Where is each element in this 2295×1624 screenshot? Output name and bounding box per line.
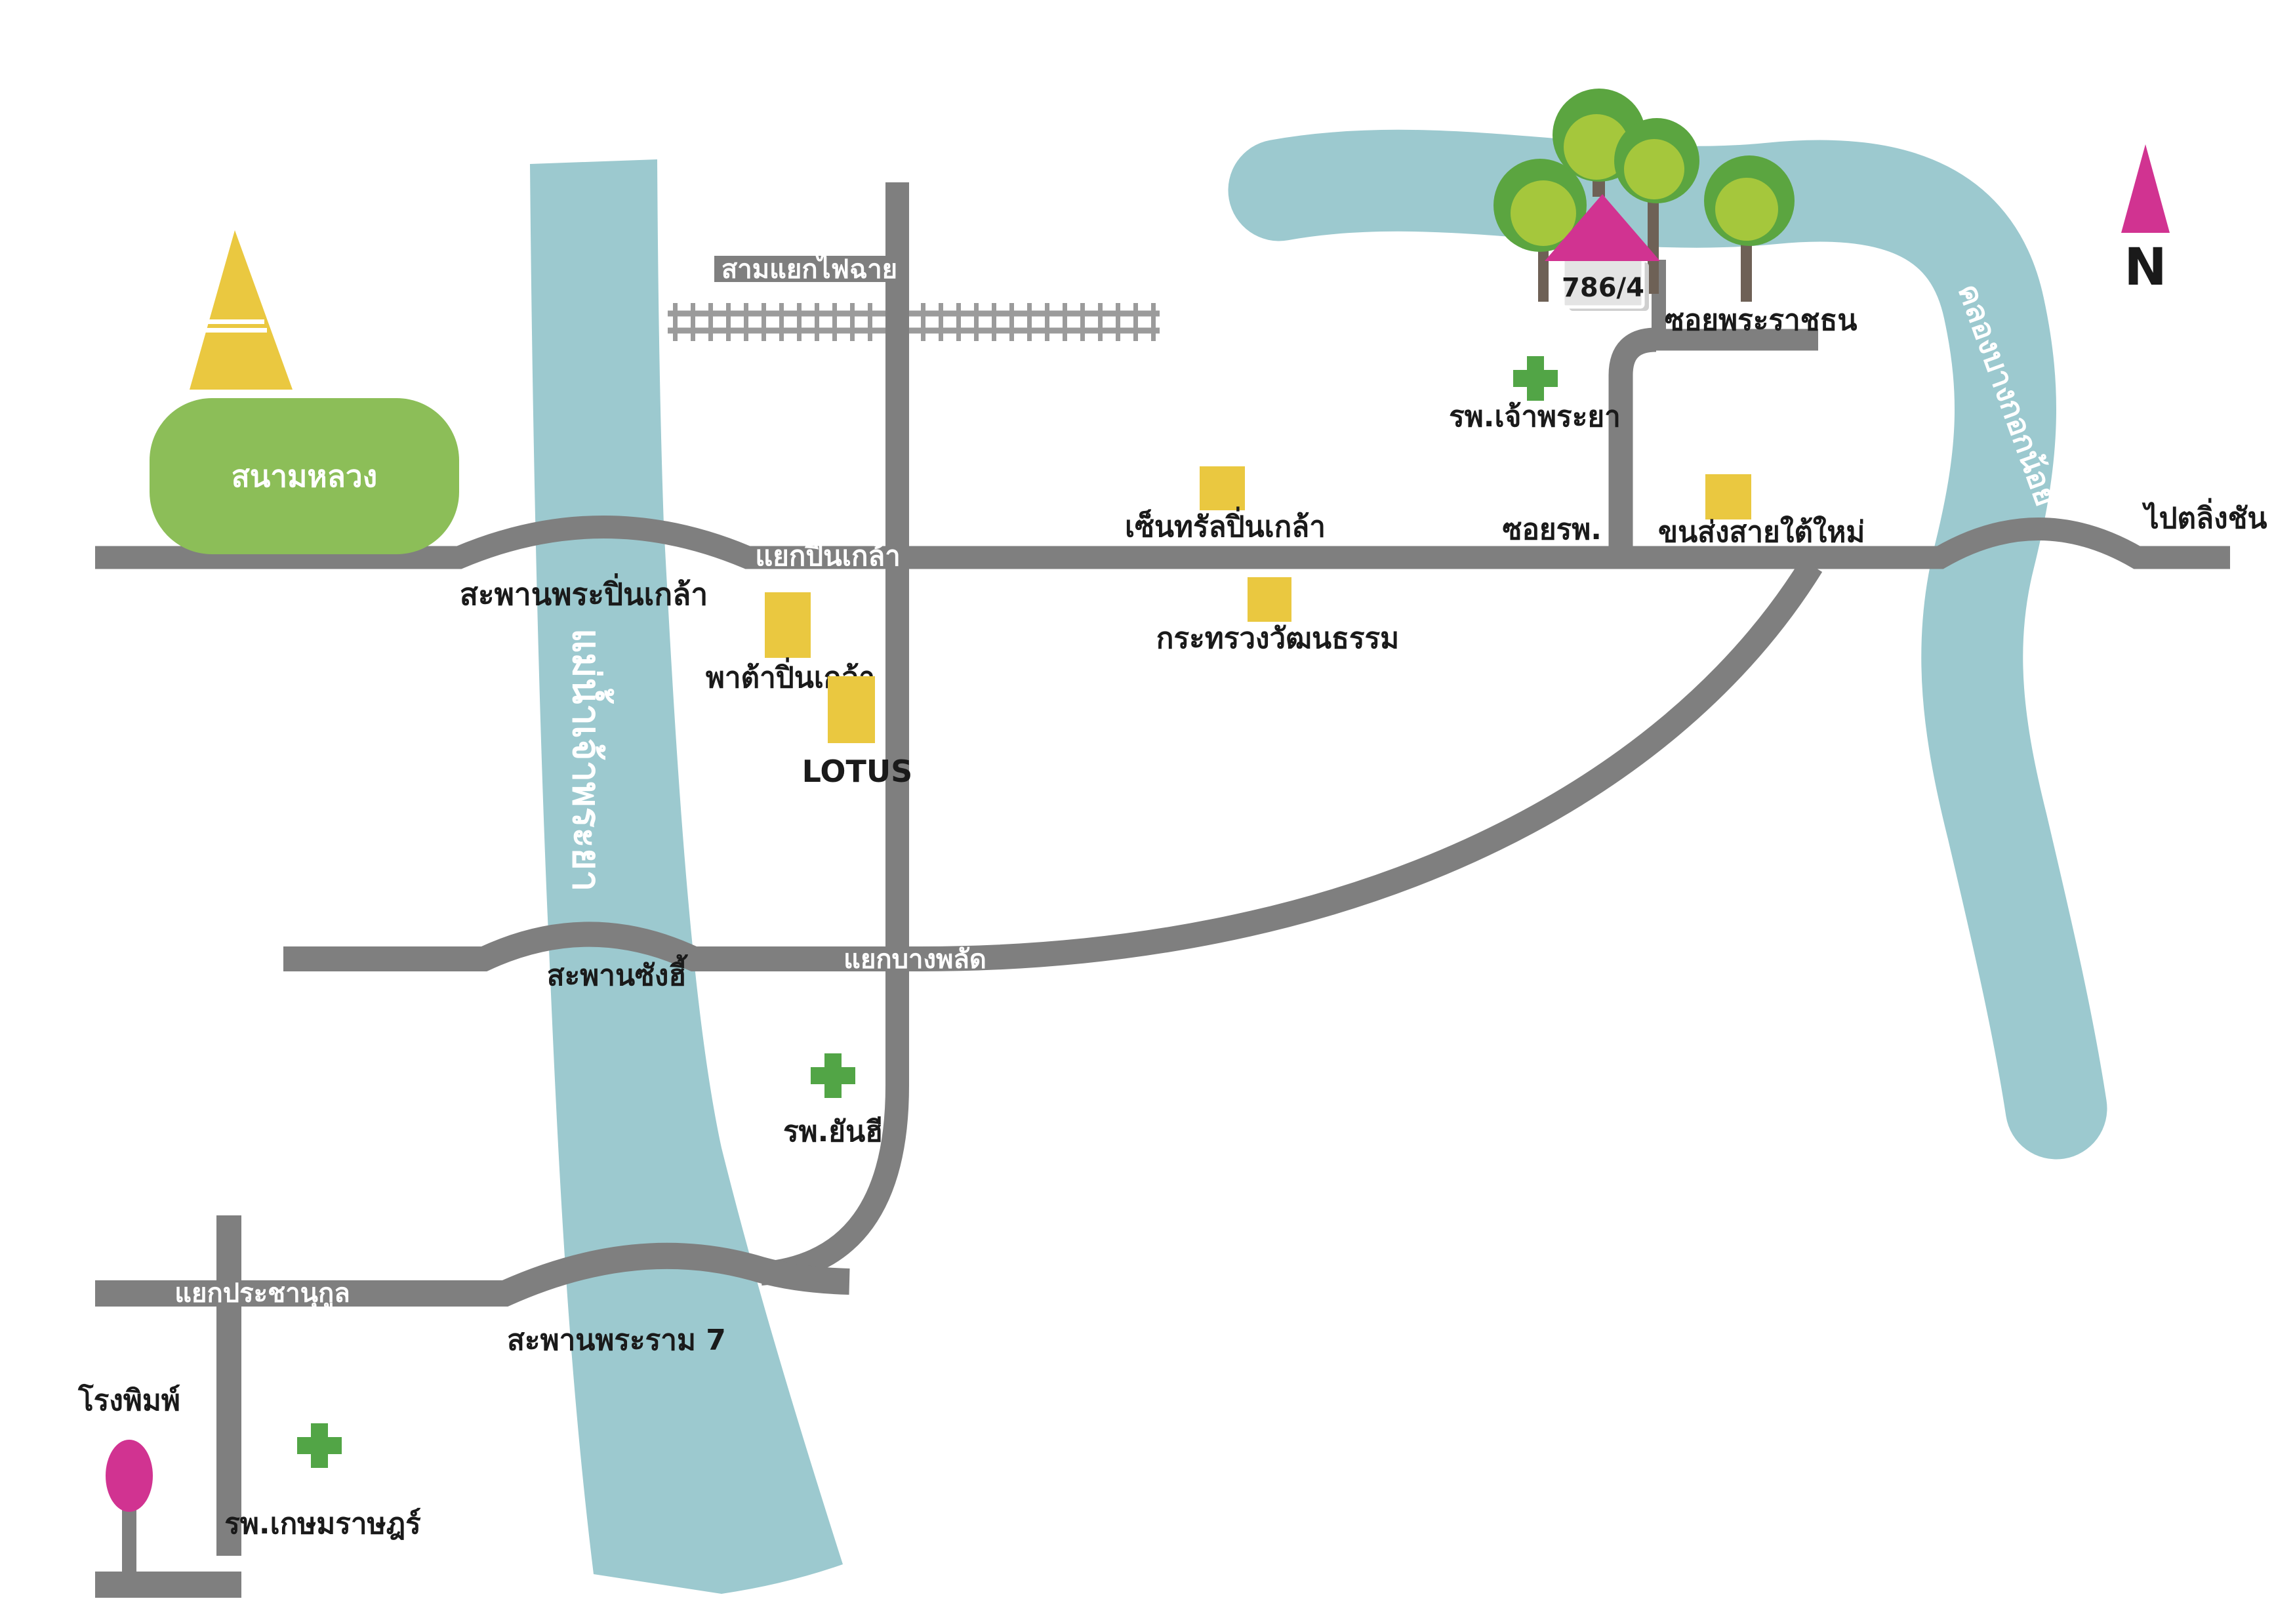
building-pata-pinklao [765,592,811,658]
bang-phlat-junction-label: แยกบางพลัด [843,944,986,975]
chao-phraya-hospital-label: รพ.เจ้าพระยา [1449,400,1621,434]
pinklao-junction-label: แยกปิ่นเกล้า [755,537,901,572]
printing-house-marker [106,1440,153,1512]
phra-pinklao-bridge-label: สะพานพระปิ่นเกล้า [460,573,708,612]
rama-7-bridge-label: สะพานพระราม 7 [507,1324,726,1357]
chao-phraya-hospital-cross-icon [1513,356,1558,401]
central-pinklao-label: เซ็นทรัลปิ่นเกล้า [1125,506,1326,544]
lotus-label: LOTUS [802,754,913,789]
pagoda-stripe-1 [207,319,264,324]
pracha-nukun-junction-label: แยกประชานุกูล [174,1278,350,1310]
yanhee-hospital-label: รพ.ยันฮี [783,1115,883,1148]
building-lotus [828,676,875,743]
kasemrad-hospital-cross-icon [297,1423,342,1468]
yanhee-hospital-cross-icon [811,1053,855,1098]
pagoda-stripe-2 [204,328,267,333]
compass-north-arrow-icon [2121,144,2170,233]
sanam-luang-group: สนามหลวง [150,230,459,554]
sanam-luang-label: สนามหลวง [232,458,377,494]
printing-house-group: โรงพิมพ์ [77,1383,180,1512]
road-bang-phlat-sweep [283,565,1812,959]
kasemrad-hospital-label: รพ.เกษมราษฎร์ [224,1507,421,1541]
tree-3-canopy-inner [1624,139,1684,199]
yellow-buildings: พาต้าปิ่นเกล้า LOTUS เซ็นทรัลปิ่นเกล้า ก… [706,466,1865,789]
fai-chai-junction-label: สามแยกไฟฉาย [721,254,897,285]
building-ministry-of-culture [1248,577,1291,622]
map-svg: แม่น้ำเจ้าพระยา คลองบางกอกน้อย ส [0,0,2295,1624]
road-hospital-soi [1621,340,1656,563]
southern-bus-terminal-label: ขนส่งสายใต้ใหม่ [1658,515,1865,549]
tree-4-canopy-inner [1715,178,1778,241]
house-number-label: 786/4 [1562,273,1644,303]
compass: N [2121,144,2170,297]
ministry-of-culture-label: กระทรวงวัฒนธรรม [1156,622,1399,655]
phra-ratchathon-soi-label: ซอยพระราชธน [1665,304,1857,337]
waterways-layer: แม่น้ำเจ้าพระยา คลองบางกอกน้อย [530,159,2064,1594]
building-southern-bus-terminal [1705,474,1751,519]
direction-map: แม่น้ำเจ้าพระยา คลองบางกอกน้อย ส [0,0,2295,1624]
compass-north-label: N [2124,238,2166,297]
sang-hi-bridge-label: สะพานซังฮี้ [547,954,689,992]
to-taling-chan-label: ไปตลิ่งชัน [2142,498,2267,535]
chao-phraya-river-label: แม่น้ำเจ้าพระยา [564,628,614,891]
roads-layer [95,182,2230,1585]
railway-track [668,314,1160,331]
pagoda-icon [190,230,293,390]
printing-house-label: โรงพิมพ์ [77,1383,180,1417]
building-central-pinklao [1200,466,1245,510]
hospital-soi-label: ซอยรพ. [1503,513,1602,546]
